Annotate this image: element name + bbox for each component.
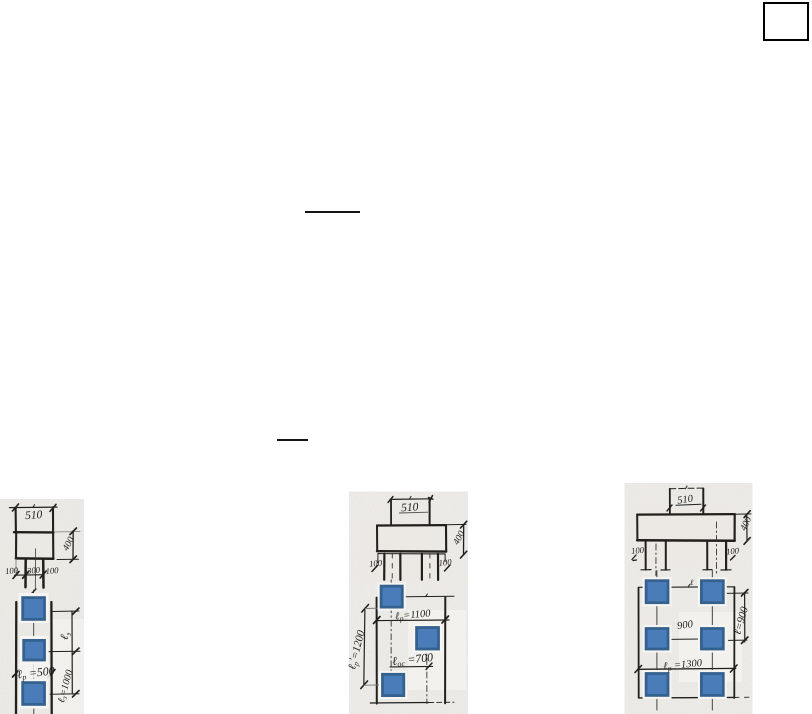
svg-text:510: 510 [25, 509, 43, 522]
svg-text:510: 510 [677, 493, 695, 506]
svg-text:100: 100 [726, 545, 740, 556]
svg-text:900: 900 [677, 619, 695, 632]
svg-text:300: 300 [26, 565, 41, 576]
svg-text:100: 100 [369, 558, 383, 569]
svg-text:100: 100 [5, 565, 19, 576]
svg-text:100: 100 [45, 565, 59, 576]
svg-text:100: 100 [438, 557, 452, 568]
svg-text:100: 100 [631, 545, 645, 556]
